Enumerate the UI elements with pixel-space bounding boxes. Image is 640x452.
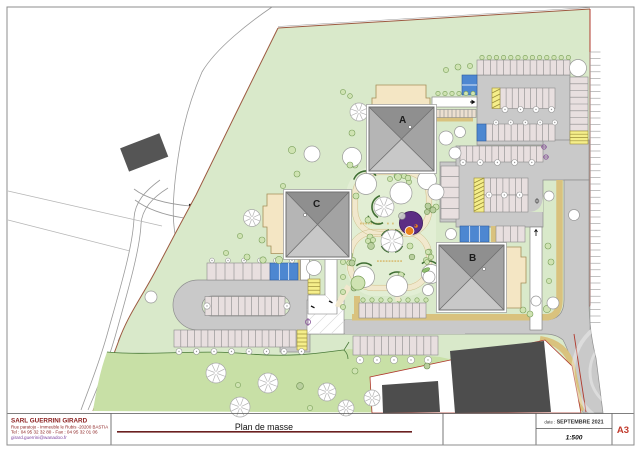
- svg-text:1:500: 1:500: [566, 435, 583, 442]
- svg-text:Tel : 04 95 32 32 80 - Fax : 0: Tel : 04 95 32 32 80 - Fax : 04 95 32 01…: [11, 430, 98, 435]
- svg-text:B: B: [469, 253, 476, 264]
- svg-text:Plan de masse: Plan de masse: [235, 422, 293, 432]
- svg-text:A3: A3: [617, 425, 629, 436]
- svg-text:girard.guerrini@wanadoo.fr: girard.guerrini@wanadoo.fr: [11, 435, 67, 440]
- svg-text:C: C: [313, 199, 320, 210]
- svg-text:A: A: [399, 115, 406, 126]
